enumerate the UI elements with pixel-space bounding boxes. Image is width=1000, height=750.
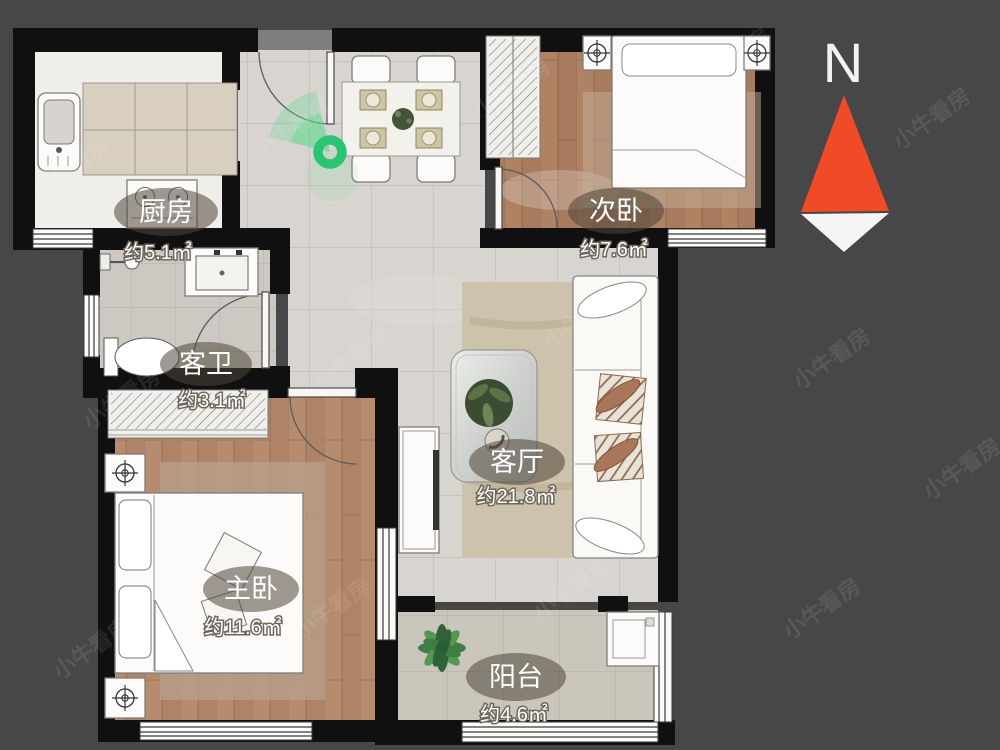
room-name: 客卫 [179,349,233,379]
floorplan-screenshot: 厨房 约5.1㎡ 次卧 约7.6㎡ 客卫 约3.1㎡ 客厅 约21.8㎡ 主卧 … [0,0,1000,750]
tv-cabinet [399,427,439,553]
dining-chair [417,56,455,84]
pillow [119,500,151,570]
washing-machine [607,612,659,666]
watermark: 小牛看房 [889,83,975,154]
room-area: 约7.6㎡ [580,237,648,261]
room-area: 约4.6㎡ [480,702,548,726]
compass: N [801,31,889,252]
dining-chair [417,154,455,182]
room-name: 次卧 [589,196,643,226]
room-name: 厨房 [139,197,193,227]
room-name: 阳台 [489,662,543,692]
floorplan-svg: 厨房 约5.1㎡ 次卧 约7.6㎡ 客卫 约3.1㎡ 客厅 约21.8㎡ 主卧 … [0,0,1000,750]
master-bedroom-window [140,722,312,740]
compass-arrow-tail-icon [801,213,889,252]
kitchen-counter [83,83,237,175]
room-area: 约11.6㎡ [204,615,281,639]
watermark: 小牛看房 [779,573,865,644]
watermark: 小牛看房 [919,433,1000,504]
second-bedroom-window [668,229,766,247]
dining-chair [352,56,390,84]
master-side-window [377,528,396,640]
bathroom-window [84,295,99,357]
balcony-plant [418,624,466,672]
room-name: 客厅 [490,447,544,477]
room-area: 约5.1㎡ [124,240,192,264]
table-plant [392,108,414,130]
compass-north-label: N [823,31,863,94]
room-area: 约3.1㎡ [178,388,246,412]
kitchen-window [33,229,93,248]
watermark: 小牛看房 [789,323,875,394]
room-area: 约21.8㎡ [477,484,556,508]
room-name: 主卧 [224,574,278,604]
tv [433,450,439,530]
vanity-sink [185,248,258,296]
room-label-living-room: 客厅 约21.8㎡ [469,439,565,508]
compass-arrow-icon [801,95,889,212]
